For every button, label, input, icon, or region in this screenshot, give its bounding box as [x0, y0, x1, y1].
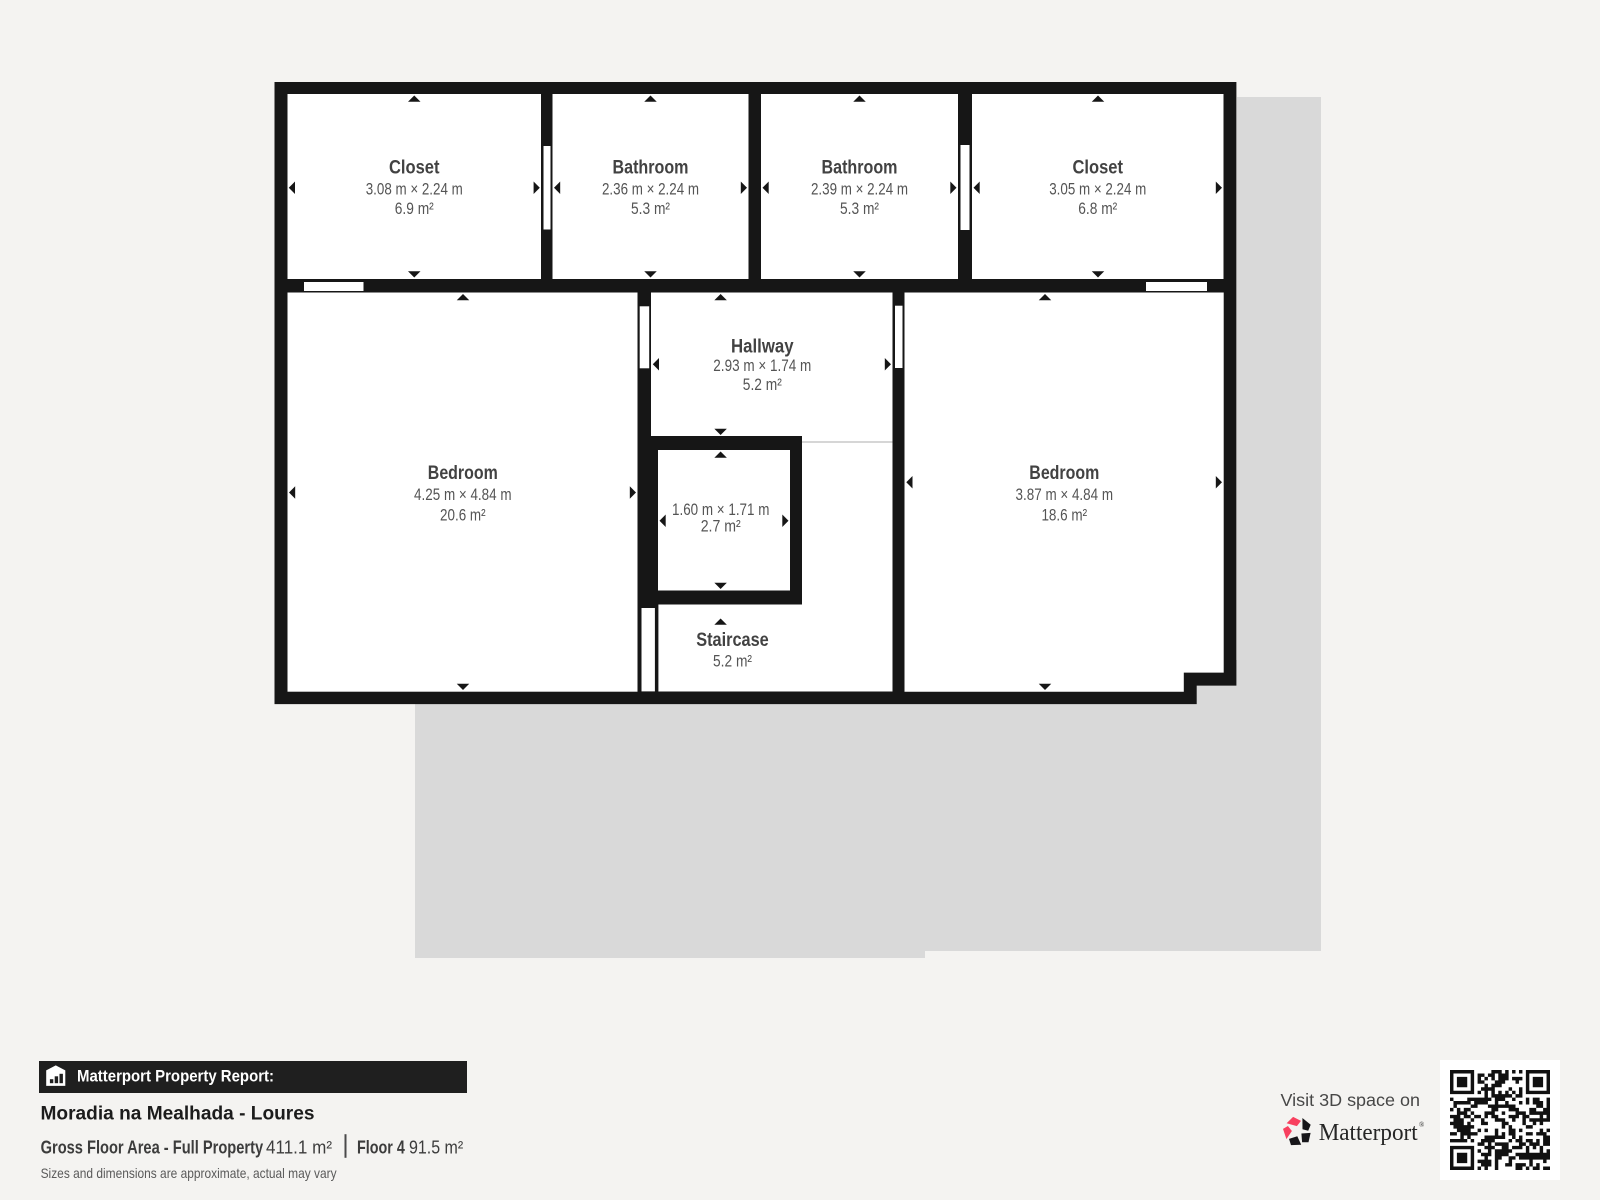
svg-text:Moradia na Mealhada - Loures: Moradia na Mealhada - Loures — [41, 1102, 315, 1124]
svg-text:Visit 3D space on: Visit 3D space on — [1281, 1090, 1421, 1110]
svg-text:3.87 m × 4.84 m: 3.87 m × 4.84 m — [1016, 485, 1114, 504]
svg-text:5.2 m²: 5.2 m² — [743, 375, 782, 394]
svg-text:Bathroom: Bathroom — [613, 157, 689, 179]
svg-text:2.7 m²: 2.7 m² — [701, 517, 741, 536]
svg-text:Hallway: Hallway — [731, 336, 794, 358]
svg-text:Closet: Closet — [389, 157, 440, 179]
svg-text:Matterport Property Report:: Matterport Property Report: — [77, 1067, 274, 1086]
svg-text:18.6 m²: 18.6 m² — [1041, 506, 1087, 525]
svg-text:Floor 4: Floor 4 — [357, 1138, 405, 1158]
svg-text:91.5 m²: 91.5 m² — [409, 1138, 463, 1158]
svg-text:Bedroom: Bedroom — [428, 462, 498, 484]
svg-text:2.93 m × 1.74 m: 2.93 m × 1.74 m — [713, 356, 811, 375]
svg-text:Bathroom: Bathroom — [822, 157, 898, 179]
svg-text:5.3 m²: 5.3 m² — [631, 199, 670, 218]
svg-text:2.36 m × 2.24 m: 2.36 m × 2.24 m — [602, 180, 699, 199]
svg-text:Sizes and dimensions are appro: Sizes and dimensions are approximate, ac… — [41, 1165, 337, 1181]
svg-text:®: ® — [1419, 1121, 1425, 1129]
svg-text:5.2 m²: 5.2 m² — [713, 651, 752, 670]
svg-text:6.8 m²: 6.8 m² — [1078, 199, 1117, 218]
svg-text:5.3 m²: 5.3 m² — [840, 199, 879, 218]
svg-text:4.25 m × 4.84 m: 4.25 m × 4.84 m — [414, 485, 512, 504]
svg-text:20.6 m²: 20.6 m² — [440, 506, 486, 525]
svg-text:6.9 m²: 6.9 m² — [395, 199, 434, 218]
svg-text:3.08 m × 2.24 m: 3.08 m × 2.24 m — [366, 180, 463, 199]
svg-text:Bedroom: Bedroom — [1029, 462, 1099, 484]
svg-text:Closet: Closet — [1073, 157, 1124, 179]
svg-text:2.39 m × 2.24 m: 2.39 m × 2.24 m — [811, 180, 908, 199]
svg-text:Gross Floor Area - Full Proper: Gross Floor Area - Full Property — [41, 1138, 264, 1158]
svg-text:Staircase: Staircase — [696, 629, 769, 651]
svg-text:3.05 m × 2.24 m: 3.05 m × 2.24 m — [1049, 180, 1146, 199]
svg-text:411.1 m²: 411.1 m² — [266, 1138, 332, 1158]
svg-text:Matterport: Matterport — [1319, 1120, 1418, 1146]
